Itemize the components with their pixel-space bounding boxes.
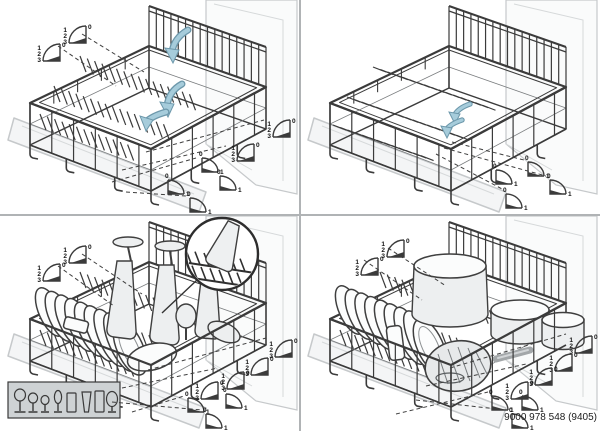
- svg-text:3: 3: [37, 277, 41, 284]
- svg-text:0: 0: [203, 407, 207, 414]
- svg-text:0: 0: [223, 387, 227, 394]
- svg-text:0: 0: [292, 118, 296, 125]
- svg-text:3: 3: [231, 157, 235, 164]
- medium-bowl: [491, 300, 549, 344]
- svg-text:1: 1: [244, 405, 248, 412]
- svg-text:1: 1: [568, 191, 572, 198]
- svg-text:1: 1: [224, 425, 228, 431]
- fold-arrow-icon: [441, 126, 452, 138]
- glassware-legend: [8, 382, 120, 418]
- tine-position-fan-quad: 0123: [381, 238, 410, 260]
- dishwasher-manual-illustration: 012301230123012301010101: [0, 0, 600, 431]
- svg-text:0: 0: [88, 244, 92, 251]
- dishwasher-cavity: [506, 0, 597, 194]
- tine-position-fan-quad: 0123: [63, 24, 92, 46]
- panel-loading-glasses: 012301230123012301230123010101: [0, 216, 300, 431]
- tine-position-fan-quad: 0123: [195, 380, 224, 402]
- champagne-flute-icon: [54, 391, 61, 404]
- wine-glass-small-icon: [41, 396, 49, 405]
- panel-fold-tines: 012301230123012301010101: [0, 0, 300, 215]
- fold-arrow-icon: [165, 48, 179, 63]
- tine-position-fan-quad: 0123: [37, 42, 66, 64]
- svg-text:1: 1: [514, 181, 518, 188]
- svg-text:0: 0: [165, 173, 169, 180]
- svg-text:1: 1: [238, 187, 242, 194]
- highball-glass-icon: [95, 391, 104, 412]
- svg-text:0: 0: [294, 338, 298, 345]
- large-pot: [412, 254, 488, 327]
- svg-text:0: 0: [489, 389, 493, 396]
- tine-position-fan-quad: 0123: [63, 244, 92, 266]
- svg-text:0: 0: [88, 24, 92, 31]
- svg-text:0: 0: [406, 238, 410, 245]
- svg-text:0: 0: [594, 334, 598, 341]
- svg-text:0: 0: [199, 151, 203, 158]
- svg-text:3: 3: [63, 39, 67, 46]
- svg-text:0: 0: [547, 173, 551, 180]
- svg-text:0: 0: [246, 370, 250, 377]
- panel-tines-flat: 01010101: [300, 0, 600, 215]
- dishwasher-cavity: [206, 0, 297, 194]
- goblet-icon: [107, 392, 118, 407]
- svg-text:0: 0: [187, 191, 191, 198]
- svg-text:1: 1: [524, 205, 528, 212]
- tine-position-fan-quad: 0123: [37, 262, 66, 284]
- svg-text:3: 3: [63, 259, 67, 266]
- svg-text:0: 0: [256, 142, 260, 149]
- wine-glass-medium-icon: [28, 393, 37, 403]
- svg-text:0: 0: [519, 389, 523, 396]
- svg-text:0: 0: [525, 155, 529, 162]
- wine-glass-large-icon: [15, 389, 26, 401]
- svg-text:1: 1: [208, 209, 212, 215]
- fold-arrows: [441, 104, 470, 138]
- svg-text:0: 0: [530, 380, 534, 387]
- svg-text:3: 3: [37, 57, 41, 64]
- svg-text:0: 0: [217, 169, 221, 176]
- panel-loading-pots: 012301230123012301230123010101 9000 978 …: [300, 216, 600, 431]
- svg-text:0: 0: [185, 391, 189, 398]
- svg-text:1: 1: [530, 425, 534, 431]
- svg-text:0: 0: [574, 352, 578, 359]
- svg-text:0: 0: [554, 366, 558, 373]
- svg-text:3: 3: [355, 271, 359, 278]
- tumbler-icon: [67, 393, 76, 412]
- svg-text:3: 3: [381, 253, 385, 260]
- svg-text:0: 0: [503, 187, 507, 194]
- svg-text:0: 0: [493, 163, 497, 170]
- svg-text:3: 3: [505, 395, 509, 402]
- tine-position-fan-quad: 0123: [355, 256, 384, 278]
- tine-position-fan-duo: 01: [519, 389, 544, 414]
- part-number: 9000 978 548 (9405): [504, 412, 597, 423]
- svg-text:0: 0: [270, 356, 274, 363]
- svg-text:3: 3: [267, 133, 271, 140]
- svg-text:0: 0: [220, 380, 224, 387]
- tine-position-fan-duo: 01: [503, 187, 528, 212]
